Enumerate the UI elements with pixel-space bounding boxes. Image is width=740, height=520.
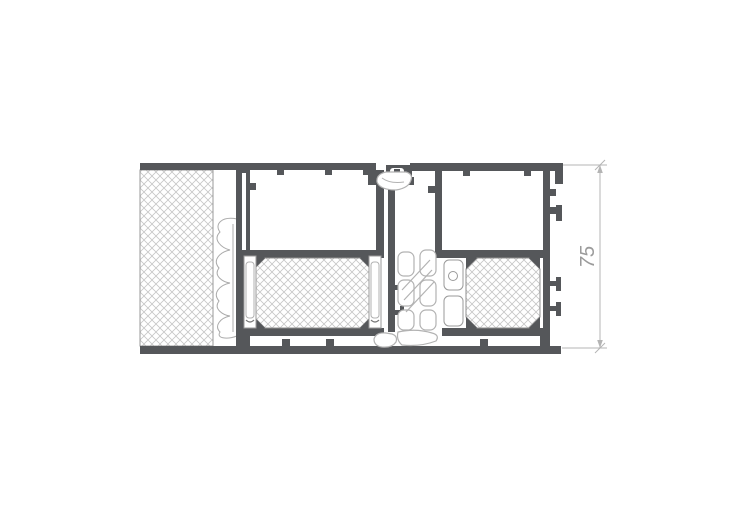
center-gasket [374, 250, 437, 347]
dimension-label: 75 [577, 245, 599, 268]
thermal-break-right [466, 258, 540, 328]
gasket-slot-left [244, 256, 256, 328]
thermal-break-left [254, 258, 371, 328]
wall-insulation-hatch [140, 170, 213, 346]
foam-sealing-tape [216, 218, 237, 338]
gasket-slot-right [369, 256, 381, 328]
profile-section-drawing: 75 [0, 0, 740, 520]
dimension-annotation: 75 [562, 160, 607, 353]
glazing-chamber [444, 260, 463, 326]
top-gasket [377, 165, 412, 190]
drawing-canvas: 75 [0, 0, 740, 520]
